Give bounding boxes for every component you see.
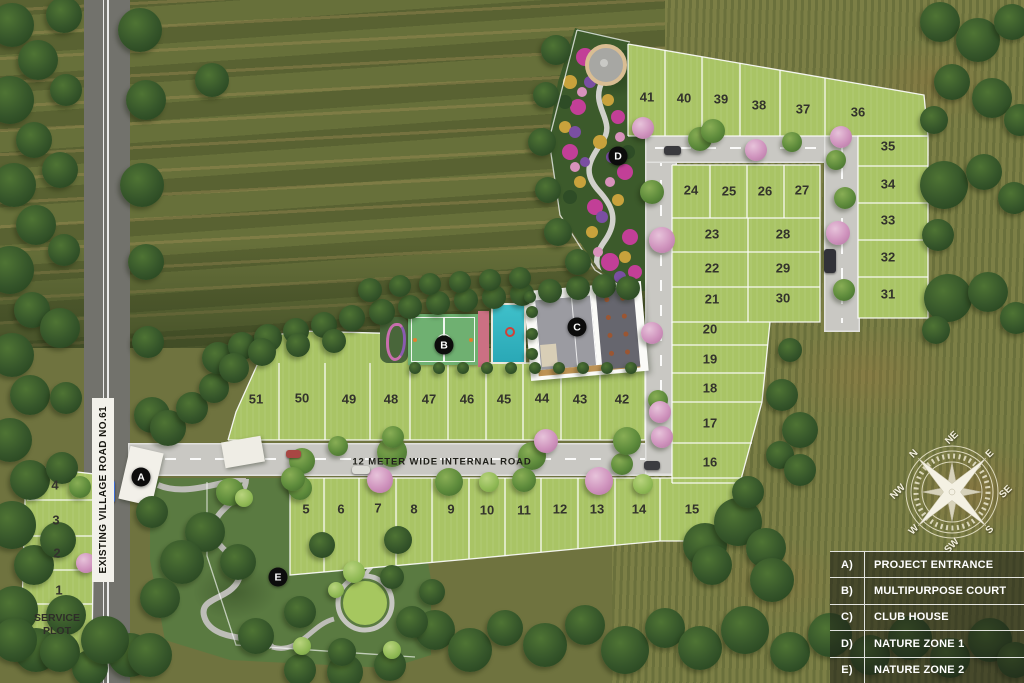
flower-bed — [606, 151, 618, 163]
club-house-steps — [540, 344, 558, 367]
legend-row: E)NATURE ZONE 2 — [830, 657, 1024, 683]
flower-bed — [563, 75, 577, 89]
tree — [150, 410, 186, 446]
tree — [448, 628, 492, 672]
flower-bed — [570, 99, 586, 115]
court-deck — [478, 311, 489, 367]
legend-row: C)CLUB HOUSE — [830, 604, 1024, 630]
flower-bed — [621, 145, 635, 159]
kids-play-area — [380, 317, 408, 363]
flower-bed — [569, 126, 581, 138]
site-plan-canvas: 1234567891011121314151617181920212223242… — [0, 0, 1024, 683]
club-house — [523, 281, 648, 381]
service-plot-label: SERVICE PLOT — [34, 612, 80, 638]
internal-road-east-leg — [824, 133, 860, 332]
tree — [50, 382, 82, 414]
legend-label: PROJECT ENTRANCE — [865, 559, 993, 571]
pool-float-icon — [505, 327, 515, 337]
tree — [176, 392, 208, 424]
flower-bed — [593, 135, 607, 149]
legend-row: D)NATURE ZONE 1 — [830, 630, 1024, 656]
flower-bed — [574, 176, 586, 188]
service-plot-line1: SERVICE — [34, 612, 80, 625]
road-dashes — [660, 155, 662, 455]
road-dashes — [655, 147, 850, 149]
tree — [134, 397, 170, 433]
flower-bed — [617, 164, 633, 180]
legend-key: D) — [830, 631, 865, 656]
flower-bed — [562, 144, 578, 160]
multipurpose-court — [408, 314, 478, 365]
legend-label: MULTIPURPOSE COURT — [865, 585, 1006, 597]
garden-plaza — [585, 44, 627, 86]
internal-road-label: 12 METER WIDE INTERNAL ROAD — [352, 457, 531, 468]
tree — [487, 610, 523, 646]
tree — [10, 375, 50, 415]
flower-bed — [619, 251, 631, 263]
compass-rose: NNEESESSWWNW — [892, 432, 1012, 552]
flower-bed — [605, 177, 615, 187]
legend-label: NATURE ZONE 1 — [865, 638, 964, 650]
rooftop-terrace — [595, 287, 640, 370]
legend-label: CLUB HOUSE — [865, 611, 949, 623]
village-road-label: EXISTING VILLAGE ROAD NO.61 — [98, 406, 109, 574]
flower-bed — [614, 271, 626, 283]
flower-bed — [570, 162, 580, 172]
legend-key: A) — [830, 552, 865, 577]
service-plot-line2: PLOT — [34, 625, 80, 638]
tree — [199, 373, 229, 403]
tree — [523, 623, 567, 667]
basketball-hoop-icon — [469, 338, 473, 342]
flower-bed — [558, 95, 572, 109]
tree — [0, 418, 32, 462]
flower-bed — [601, 253, 619, 271]
legend-key: B) — [830, 578, 865, 603]
flower-bed — [612, 194, 624, 206]
flower-bed — [596, 211, 608, 223]
flower-bed — [615, 132, 625, 142]
flower-bed — [602, 94, 614, 106]
flower-bed — [593, 247, 603, 257]
legend-row: B)MULTIPURPOSE COURT — [830, 577, 1024, 603]
basketball-hoop-icon — [413, 338, 417, 342]
flower-bed — [577, 87, 587, 97]
legend-row: A)PROJECT ENTRANCE — [830, 551, 1024, 577]
legend-key: E) — [830, 658, 865, 683]
legend-label: NATURE ZONE 2 — [865, 664, 964, 676]
flower-bed — [586, 226, 598, 238]
swimming-pool — [491, 303, 526, 364]
flower-bed — [563, 190, 577, 204]
flower-bed — [628, 265, 642, 279]
legend-key: C) — [830, 605, 865, 630]
road-dashes — [841, 143, 843, 323]
flower-bed — [622, 229, 638, 245]
flower-bed — [580, 157, 590, 167]
flower-bed — [611, 110, 625, 124]
tree — [219, 353, 249, 383]
village-road-label-strip: EXISTING VILLAGE ROAD NO.61 — [92, 398, 114, 582]
tree — [565, 605, 605, 645]
map-legend: A)PROJECT ENTRANCEB)MULTIPURPOSE COURTC)… — [830, 551, 1024, 683]
